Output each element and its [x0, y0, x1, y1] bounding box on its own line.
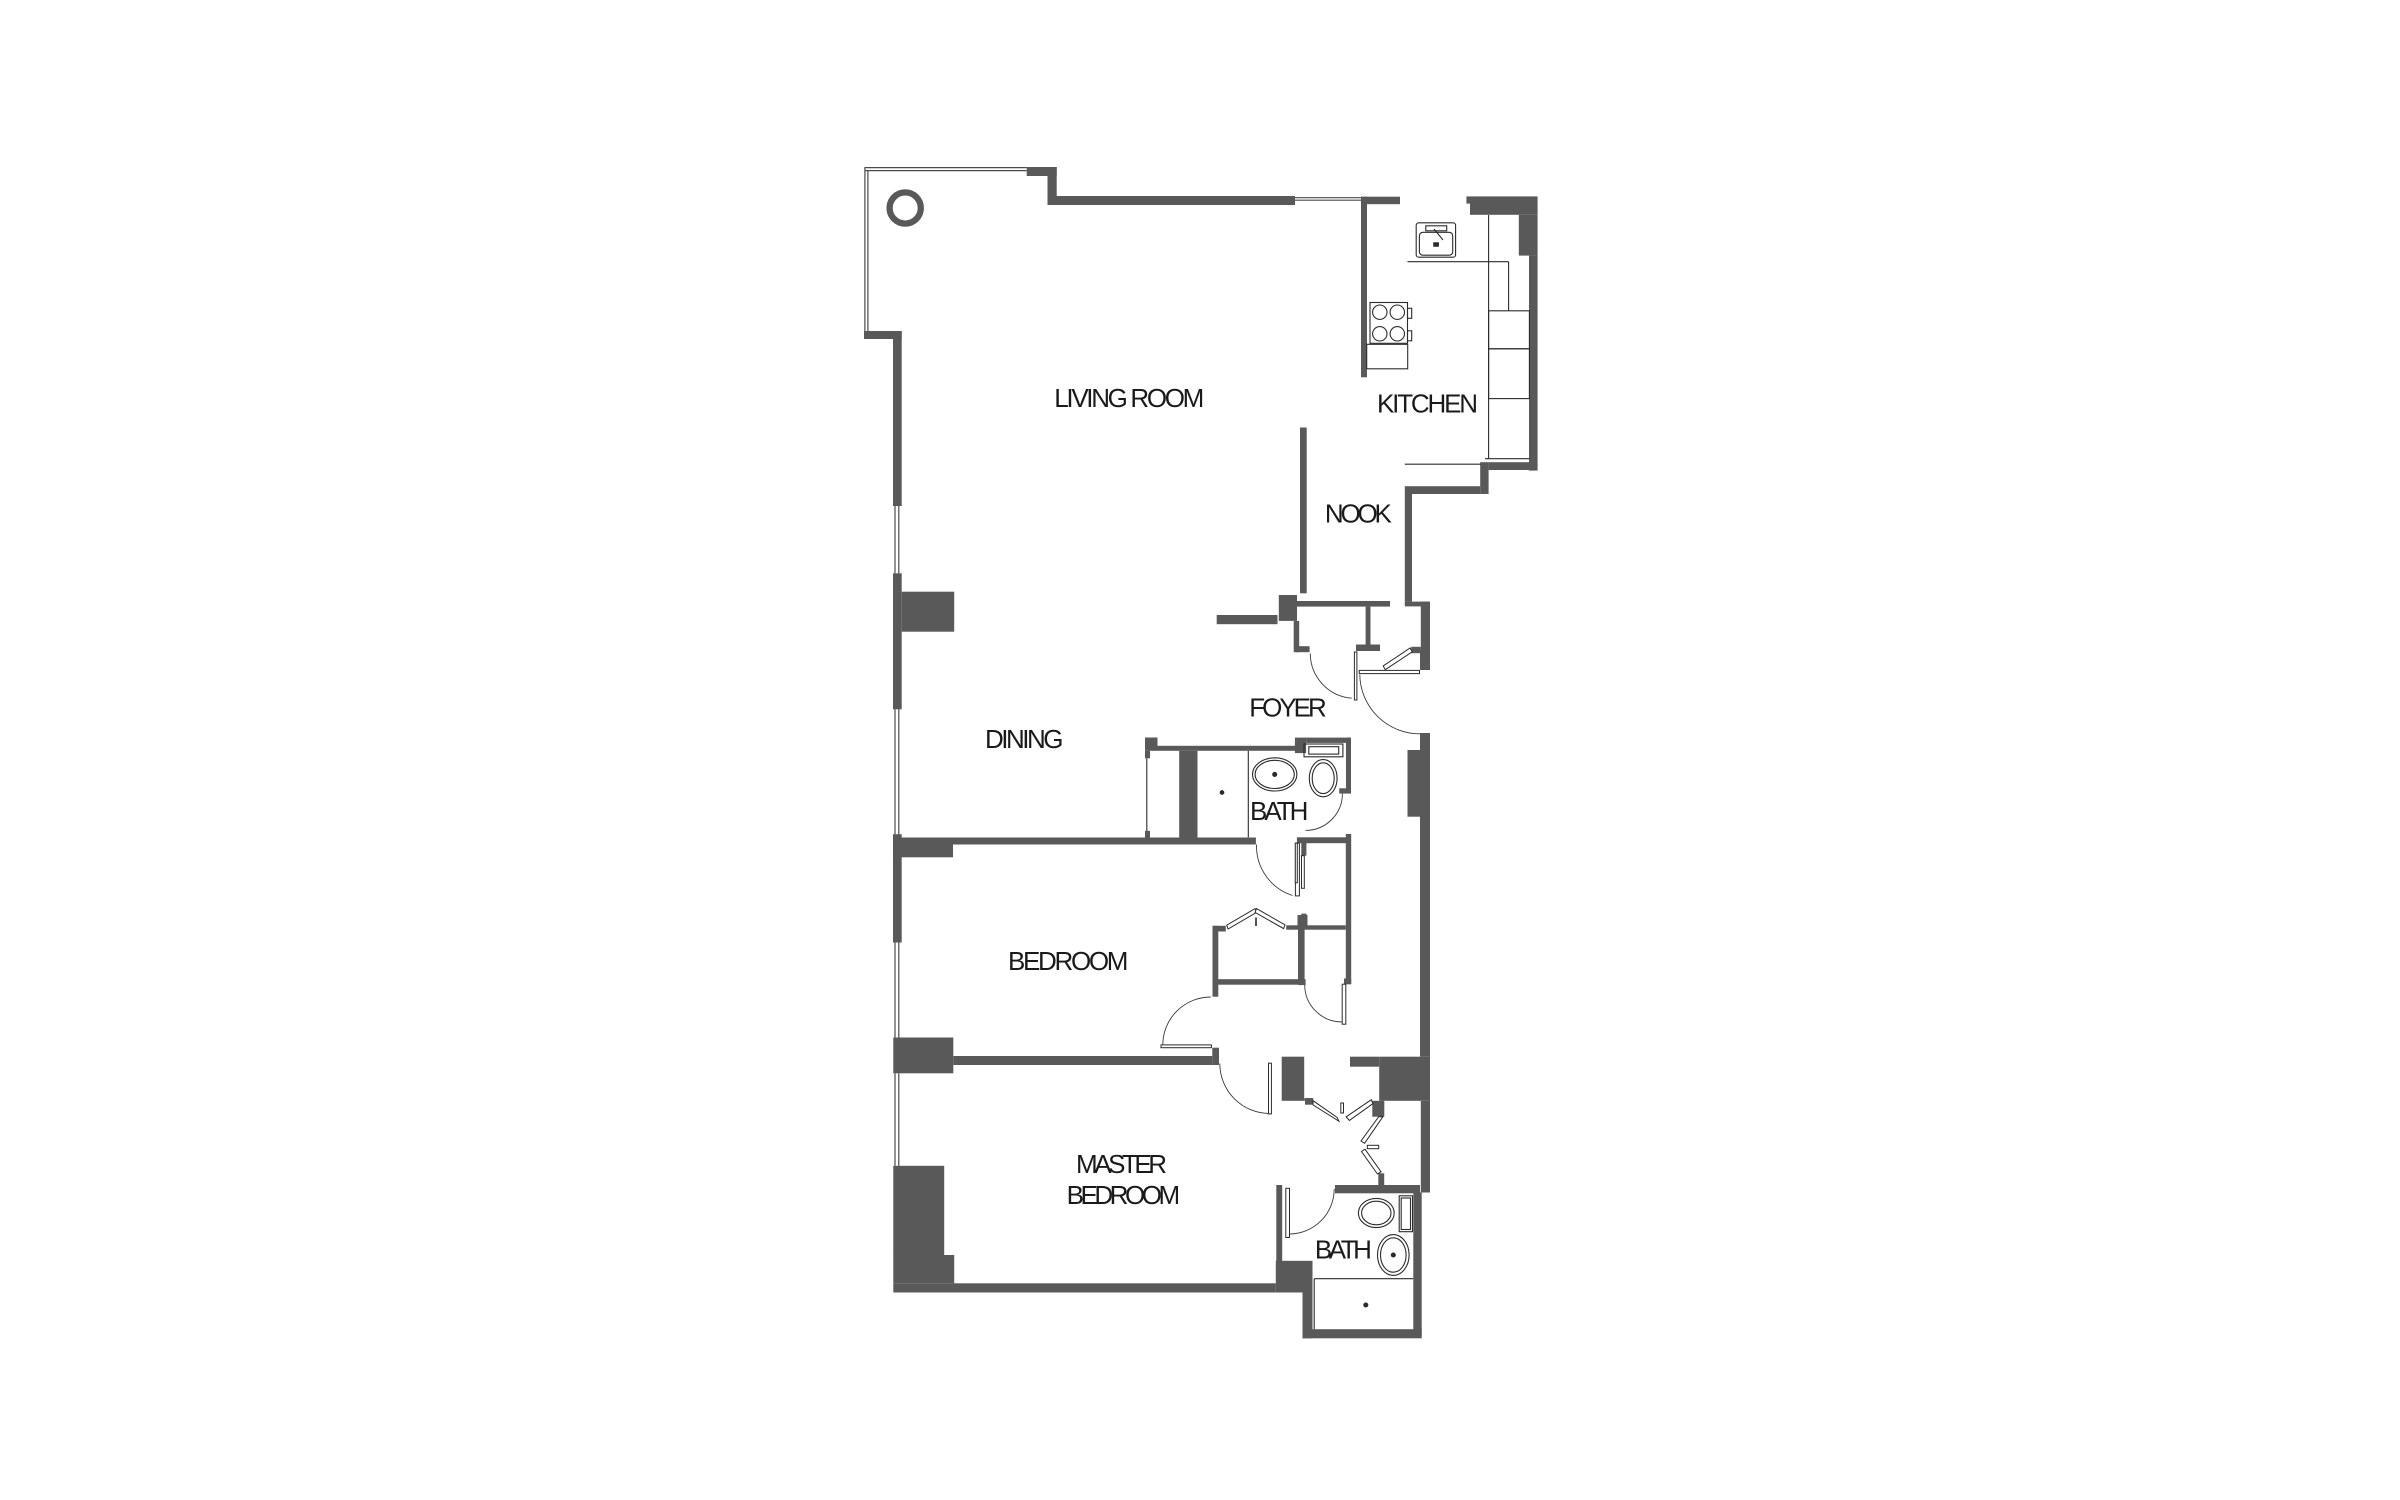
svg-text:MASTER: MASTER — [1076, 1149, 1167, 1179]
svg-text:FOYER: FOYER — [1249, 693, 1327, 723]
svg-text:DINING: DINING — [985, 724, 1064, 754]
svg-text:BATH: BATH — [1315, 1235, 1372, 1265]
svg-text:BATH: BATH — [1250, 796, 1309, 826]
svg-text:BEDROOM: BEDROOM — [1008, 946, 1129, 976]
svg-text:KITCHEN: KITCHEN — [1377, 389, 1478, 419]
svg-text:BEDROOM: BEDROOM — [1067, 1180, 1181, 1210]
svg-text:NOOK: NOOK — [1325, 499, 1393, 529]
svg-text:LIVING ROOM: LIVING ROOM — [1054, 383, 1204, 413]
